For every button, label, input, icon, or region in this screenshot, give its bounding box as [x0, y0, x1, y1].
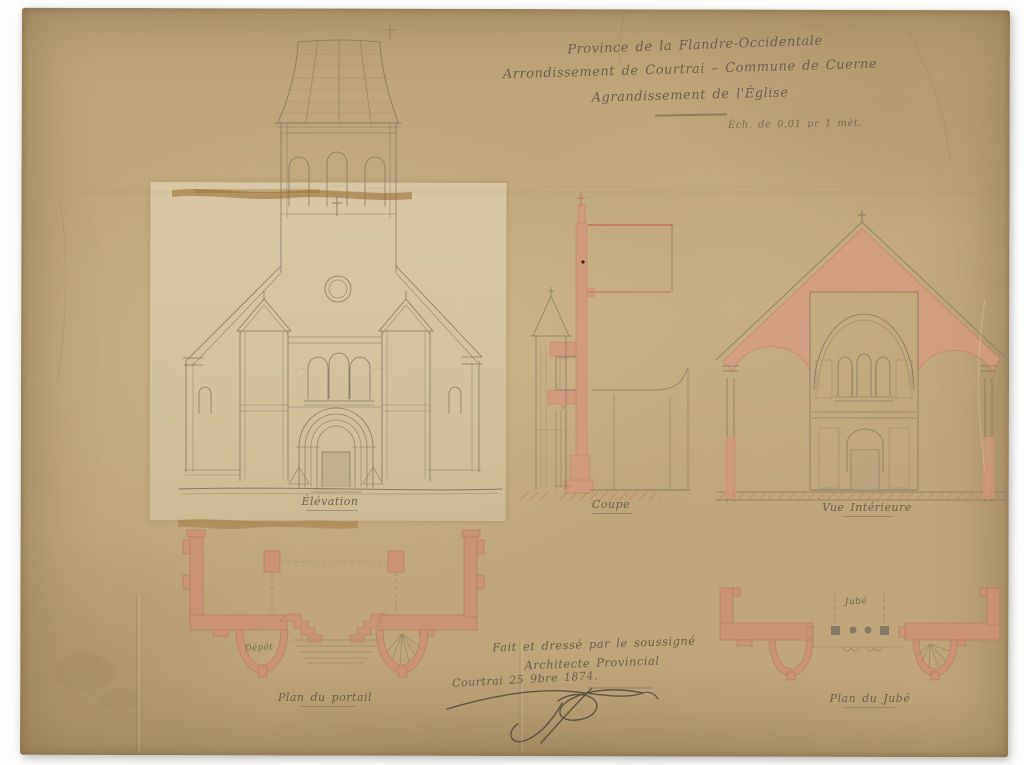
label-elevation-underline — [306, 510, 358, 511]
scale-note: Éch. de 0,01 pr 1 mèt. — [728, 118, 862, 131]
ground-line — [179, 488, 502, 490]
label-coupe: Coupe — [592, 498, 630, 511]
label-plan-jube: Plan du Jubé — [830, 692, 911, 705]
spire-shingles — [281, 54, 395, 113]
label-coupe-underline — [592, 513, 632, 514]
ground-hatch — [718, 493, 1004, 500]
annotation-jube: Jubé — [845, 597, 868, 608]
plan-portail-drawing — [183, 530, 484, 677]
ground-hatch — [518, 492, 548, 500]
pier-wash-left — [725, 437, 736, 499]
vue-interieure-drawing — [716, 211, 1006, 502]
jube-colonnade — [831, 626, 889, 635]
label-elevation: Élévation — [302, 495, 359, 508]
label-vue-underline — [843, 516, 893, 517]
scan-background: Province de la Flandre-Occidentale Arron… — [0, 0, 1024, 765]
signature-flourish — [447, 688, 658, 743]
portal-door — [322, 452, 350, 487]
coupe-pencilwork — [530, 225, 690, 490]
gable-cross — [332, 197, 342, 216]
coupe-finial — [577, 193, 585, 206]
label-vue-interieure: Vue Intérieure — [822, 501, 912, 514]
interior-door — [851, 450, 879, 490]
weathervane-cross — [384, 24, 396, 40]
coupe-wall-wash — [548, 205, 594, 493]
ink-spot — [581, 260, 584, 263]
coupe-drawing — [518, 193, 690, 500]
portail-pencilwork — [272, 562, 419, 664]
elevation-drawing — [179, 24, 502, 494]
label-plan-portail: Plan du portail — [278, 691, 372, 704]
portail-walls — [183, 530, 484, 677]
annotation-depot: Dépôt — [245, 642, 274, 653]
label-plan-jube-underline — [845, 707, 897, 708]
gable-wash — [723, 229, 1000, 372]
label-plan-portail-underline — [300, 706, 355, 707]
